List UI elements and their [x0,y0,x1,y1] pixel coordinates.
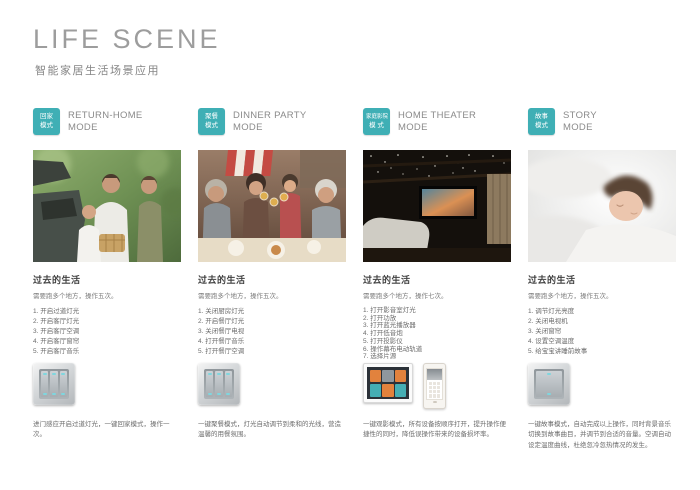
badge-line2: 模式 [205,122,218,131]
step-item: 1. 关闭厨房灯光 [198,307,346,317]
mode-header: 回家 模式 RETURN-HOME MODE [33,108,181,138]
step-item: 3. 关闭窗帘 [528,327,676,337]
mode-title: DINNER PARTY MODE [233,110,306,135]
past-life-steps: 1. 打开影音室灯光2. 打开功放3. 打开蓝光播放器4. 打开低音炮5. 打开… [363,307,511,361]
phone-home-button [433,401,437,404]
panel-tile [395,370,406,383]
panel-tile [395,384,406,397]
past-life-heading: 过去的生活 [528,273,676,286]
story-mode-badge-icon: 故事 模式 [528,108,555,135]
mode-description: 一键观影模式，所有设备按顺序打开，提升操作便捷性的同时，降低误操作带来的设备损坏… [363,420,510,441]
switch-rocker [60,371,67,397]
mode-header: 聚餐 模式 DINNER PARTY MODE [198,108,346,138]
badge-line1: 回家 [40,113,53,122]
mode-header: 故事 模式 STORY MODE [528,108,676,138]
panel-tile [382,384,393,397]
product-area [363,363,511,413]
step-item: 5. 打开投影仪 [363,338,511,346]
step-item: 4. 开启客厅窗帘 [33,337,181,347]
badge-line1: 聚餐 [205,113,218,122]
step-item: 5. 开启客厅音乐 [33,347,181,357]
step-item: 4. 打开低音炮 [363,330,511,338]
scene-photo-return-home [33,150,181,262]
page-title: LIFE SCENE [33,24,700,55]
badge-line1: 故事 [535,113,548,122]
past-life-heading: 过去的生活 [33,273,181,286]
scene-column-dinner-party: 聚餐 模式 DINNER PARTY MODE [198,108,346,451]
step-item: 4. 设置空调温度 [528,337,676,347]
step-item: 3. 开启客厅空调 [33,327,181,337]
home-theater-mode-badge-icon: 家庭影院 模 式 [363,108,390,135]
mode-header: 家庭影院 模 式 HOME THEATER MODE [363,108,511,138]
step-item: 5. 给宝宝讲睡前故事 [528,347,676,357]
switch-rocker [206,371,213,397]
scene-column-home-theater: 家庭影院 模 式 HOME THEATER MODE [363,108,511,451]
past-life-subtitle: 需要跑多个地方，操作五次。 [198,290,346,300]
step-item: 1. 打开影音室灯光 [363,307,511,315]
scene-column-return-home: 回家 模式 RETURN-HOME MODE [33,108,181,451]
panel-tile [370,384,381,397]
three-gang-switch-product [33,363,75,405]
page-subtitle: 智能家居生活场景应用 [35,62,700,78]
step-item: 3. 关闭餐厅电视 [198,327,346,337]
product-area [528,363,676,413]
app-button-grid [427,380,442,399]
step-item: 2. 开启客厅灯光 [33,317,181,327]
mode-description: 一键故事模式，自动完成以上操作，同时背景音乐切换到故事曲目，并调节到合适的音量。… [528,420,675,451]
past-life-heading: 过去的生活 [363,273,511,286]
step-item: 2. 关闭电视机 [528,317,676,327]
panel-tile [382,370,393,383]
past-life-heading: 过去的生活 [198,273,346,286]
past-life-subtitle: 需要跑多个地方，操作五次。 [33,290,181,300]
scene-photo-story [528,150,676,262]
brochure-page: LIFE SCENE 智能家居生活场景应用 回家 模式 RETURN-HOME … [0,0,700,490]
badge-line2: 模式 [40,122,53,131]
touchscreen-panel-product [363,363,413,403]
dinner-party-mode-badge-icon: 聚餐 模式 [198,108,225,135]
switch-rocker [536,371,562,397]
past-life-steps: 1. 开启过道灯光2. 开启客厅灯光3. 开启客厅空调4. 开启客厅窗帘5. 开… [33,307,181,361]
step-item: 3. 打开蓝光播放器 [363,322,511,330]
panel-tile [370,370,381,383]
page-header: LIFE SCENE 智能家居生活场景应用 [0,0,700,78]
product-area [33,363,181,413]
scene-photo-dinner-party [198,150,346,262]
app-photo-header [427,369,442,380]
mode-title: HOME THEATER MODE [398,110,476,135]
step-item: 1. 开启过道灯光 [33,307,181,317]
return-home-mode-badge-icon: 回家 模式 [33,108,60,135]
product-area [198,363,346,413]
mode-description: 进门感应开启过道灯光，一键回家模式，操作一次。 [33,420,180,441]
switch-rocker [225,371,232,397]
step-item: 1. 调节灯光亮度 [528,307,676,317]
step-item: 2. 开启餐厅灯光 [198,317,346,327]
badge-line2: 模 式 [369,122,384,131]
badge-line2: 模式 [535,122,548,131]
switch-rocker [41,371,48,397]
switch-rocker [50,371,57,397]
three-gang-switch-product [198,363,240,405]
mode-description: 一键聚餐模式，灯光自动调节到柔和的光线，营造温馨的用餐氛围。 [198,420,345,441]
past-life-subtitle: 需要跑多个地方，操作五次。 [528,290,676,300]
one-gang-switch-product [528,363,570,405]
past-life-steps: 1. 调节灯光亮度2. 关闭电视机3. 关闭窗帘4. 设置空调温度5. 给宝宝讲… [528,307,676,361]
switch-rocker [215,371,222,397]
scene-column-story: 故事 模式 STORY MODE [528,108,676,451]
past-life-subtitle: 需要跑多个地方，操作七次。 [363,290,511,300]
badge-line1: 家庭影院 [365,113,387,120]
mode-title: STORY MODE [563,110,597,135]
scene-photo-home-theater [363,150,511,262]
smartphone-app-product [423,363,446,409]
scene-columns: 回家 模式 RETURN-HOME MODE [0,78,700,451]
mode-title: RETURN-HOME MODE [68,110,143,135]
step-item: 4. 打开餐厅音乐 [198,337,346,347]
past-life-steps: 1. 关闭厨房灯光2. 开启餐厅灯光3. 关闭餐厅电视4. 打开餐厅音乐5. 打… [198,307,346,361]
step-item: 7. 选择片源 [363,353,511,361]
step-item: 5. 打开餐厅空调 [198,347,346,357]
